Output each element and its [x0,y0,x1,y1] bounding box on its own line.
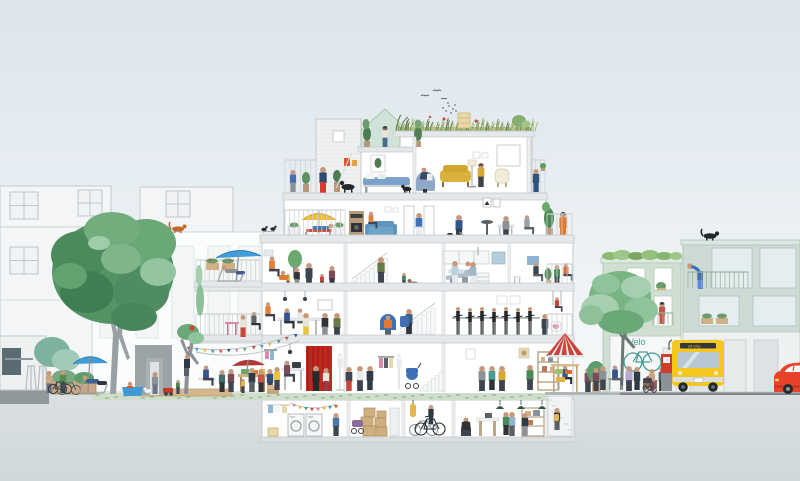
svg-text:24 City: 24 City [688,344,700,349]
